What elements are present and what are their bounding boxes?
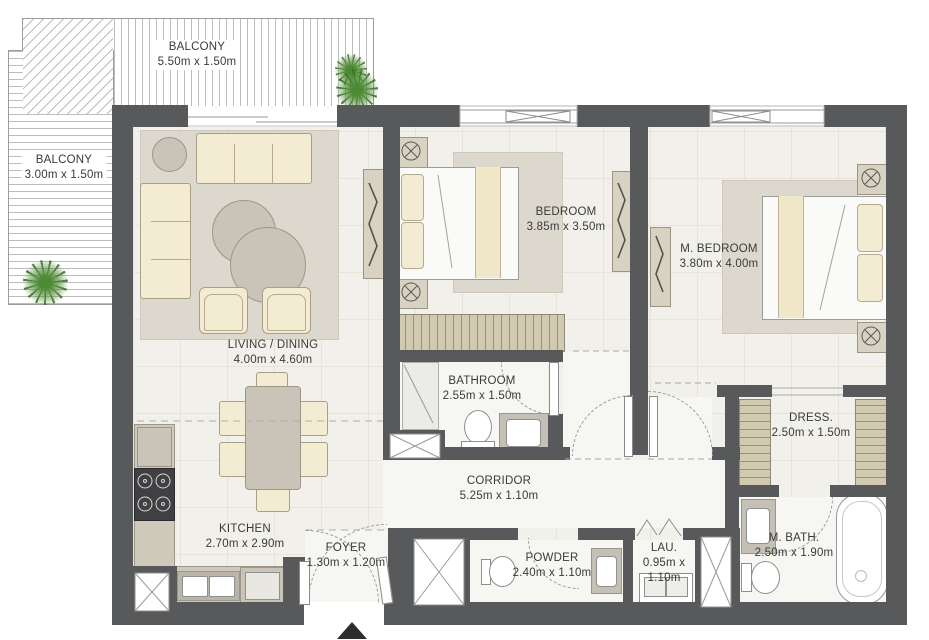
door-leaf <box>549 362 559 416</box>
room-dims: 3.85m x 3.50m <box>527 220 606 235</box>
room-dims: 2.50m x 1.90m <box>755 546 834 561</box>
room-dims: 2.40m x 1.10m <box>513 566 592 581</box>
room-name: FOYER <box>307 541 386 556</box>
room-dims: 3.00m x 1.50m <box>25 168 104 183</box>
room-name: M. BEDROOM <box>680 242 759 257</box>
room-label-balcony-top: BALCONY 5.50m x 1.50m <box>155 40 240 70</box>
room-name: BALCONY <box>158 40 237 55</box>
room-name: POWDER <box>513 551 592 566</box>
room-label-living-dining: LIVING / DINING 4.00m x 4.60m <box>228 338 319 368</box>
room-dims: 1.10m <box>643 571 685 586</box>
entrance-arrow-icon <box>337 622 367 639</box>
door-leaf <box>649 396 658 457</box>
room-label-master-bath: M. BATH. 2.50m x 1.90m <box>755 531 834 561</box>
room-name: M. BATH. <box>755 531 834 546</box>
room-label-corridor: CORRIDOR 5.25m x 1.10m <box>460 474 539 504</box>
room-label-foyer: FOYER 1.30m x 1.20m <box>307 541 386 571</box>
door-leaf <box>624 396 633 457</box>
room-label-master-bedroom: M. BEDROOM 3.80m x 4.00m <box>680 242 759 272</box>
room-label-laundry: LAU. 0.95m x 1.10m <box>643 541 685 586</box>
room-name: DRESS. <box>772 411 851 426</box>
room-dims: 2.55m x 1.50m <box>443 389 522 404</box>
room-dims: 3.80m x 4.00m <box>680 257 759 272</box>
room-label-powder: POWDER 2.40m x 1.10m <box>513 551 592 581</box>
room-name: LAU. <box>643 541 685 556</box>
room-label-kitchen: KITCHEN 2.70m x 2.90m <box>206 522 285 552</box>
room-name: BEDROOM <box>527 205 606 220</box>
room-name: LIVING / DINING <box>228 338 319 353</box>
room-dims: 5.50m x 1.50m <box>158 55 237 70</box>
room-dims: 0.95m x <box>643 556 685 571</box>
room-dims: 4.00m x 4.60m <box>228 353 319 368</box>
room-dims: 2.70m x 2.90m <box>206 537 285 552</box>
room-label-bedroom: BEDROOM 3.85m x 3.50m <box>527 205 606 235</box>
room-name: BALCONY <box>25 153 104 168</box>
room-label-dressing: DRESS. 2.50m x 1.50m <box>772 411 851 441</box>
room-label-balcony-left: BALCONY 3.00m x 1.50m <box>22 153 107 183</box>
room-name: CORRIDOR <box>460 474 539 489</box>
room-label-bathroom: BATHROOM 2.55m x 1.50m <box>443 374 522 404</box>
room-dims: 2.50m x 1.50m <box>772 426 851 441</box>
room-dims: 5.25m x 1.10m <box>460 489 539 504</box>
floor-plan: BALCONY 5.50m x 1.50m BALCONY 3.00m x 1.… <box>0 0 929 640</box>
room-name: BATHROOM <box>443 374 522 389</box>
room-dims: 1.30m x 1.20m <box>307 556 386 571</box>
room-name: KITCHEN <box>206 522 285 537</box>
